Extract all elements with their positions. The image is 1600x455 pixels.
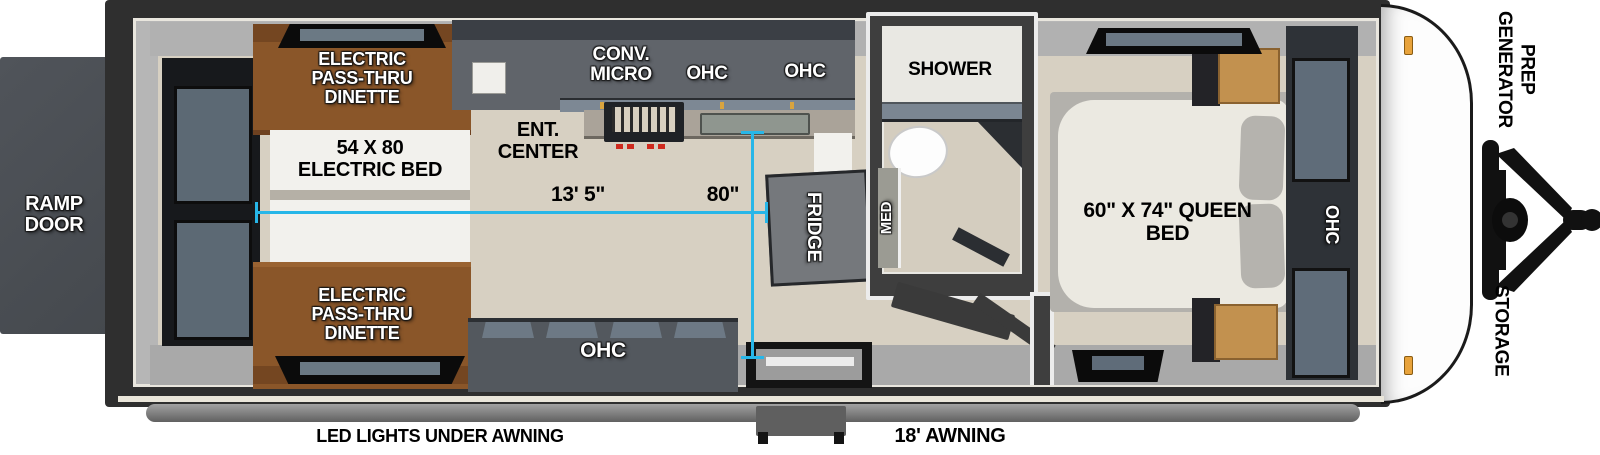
floor-register-glass [1092, 356, 1144, 370]
storage-label: STORAGE [1490, 276, 1514, 386]
conv-micro-text: CONV. MICRO [586, 45, 656, 85]
shower-label: SHOWER [880, 60, 1020, 81]
skylight-glass [300, 362, 440, 375]
dimension-tick [741, 131, 764, 134]
pillow [1239, 115, 1286, 200]
skylight-glass [1106, 33, 1242, 46]
floorplan-canvas: RAMP DOOR ELECTRIC PASS-THRU DINETTE ELE… [0, 0, 1600, 455]
fridge-label: FRIDGE [803, 182, 827, 272]
front-cap [1381, 4, 1473, 404]
ohc-kitchen-label-2: OHC [779, 62, 831, 82]
dimension-tick [741, 356, 764, 359]
awning-rail [146, 404, 1360, 422]
ent-center-text: ENT. CENTER [494, 120, 582, 163]
nightstand-wood-top [1218, 48, 1280, 104]
electric-bed-text: 54 X 80 ELECTRIC BED [290, 138, 450, 181]
exterior-step-leg [758, 432, 768, 444]
queen-bed-text: 60" X 74" QUEEN BED [1078, 200, 1258, 245]
skylight-glass [300, 29, 424, 41]
shower-glass [882, 102, 1022, 122]
dimension-line-vertical [751, 133, 754, 359]
ramp-door-label: RAMP DOOR [0, 194, 108, 236]
exterior-step-leg [834, 432, 844, 444]
led-light-strip [118, 396, 1384, 402]
electric-bed-label: 54 X 80 ELECTRIC BED [270, 138, 470, 181]
tv-cabinet-window [174, 86, 252, 204]
ohc-lower-glass [674, 322, 726, 338]
nightstand-wood-top [1214, 304, 1278, 360]
tv-cabinet-window [174, 220, 252, 340]
ent-center-minifridge [472, 62, 506, 94]
ohc-lower-glass [610, 322, 662, 338]
dinette-top-label: ELECTRIC PASS-THRU DINETTE [253, 50, 471, 107]
wardrobe-window [1292, 268, 1350, 378]
wardrobe-window [1292, 58, 1350, 182]
ohc-lower-glass [482, 322, 534, 338]
dinette-top-text: ELECTRIC PASS-THRU DINETTE [292, 50, 432, 107]
ohc-kitchen-label-1: OHC [681, 64, 733, 84]
burner-knob [658, 144, 665, 149]
bedroom-partition-core [1034, 296, 1050, 385]
clearance-light [1404, 356, 1413, 375]
ohc-bedroom-label: OHC [1322, 190, 1344, 260]
burner-knob [627, 144, 634, 149]
ohc-lower-glass [546, 322, 598, 338]
electric-bed-seam [270, 190, 470, 200]
dinette-bottom-text: ELECTRIC PASS-THRU DINETTE [292, 286, 432, 343]
queen-bed-label: 60" X 74" QUEEN BED [1055, 200, 1280, 245]
awning-label: 18' AWNING [870, 426, 1030, 448]
ent-center-label: ENT. CENTER [486, 120, 590, 163]
fireplace-screen [612, 107, 676, 132]
dimension-width-label: 80" [694, 184, 752, 207]
entry-door-step [766, 357, 854, 366]
conv-micro-label: CONV. MICRO [570, 45, 672, 85]
clearance-light [1404, 36, 1413, 55]
dimension-tick [255, 202, 258, 223]
counter-end-panel [814, 133, 852, 175]
dimension-length-label: 13' 5" [518, 184, 638, 207]
ohc-lower-label: OHC [468, 340, 738, 362]
exterior-step [756, 406, 846, 436]
ramp-door-text: RAMP DOOR [18, 194, 90, 236]
cabinet-hinge [790, 102, 794, 109]
burner-knob [616, 144, 623, 149]
generator-prep-label: GENERATOR PREP [1492, 2, 1540, 136]
med-label: MED [879, 191, 897, 245]
cabinet-hinge [720, 102, 724, 109]
dimension-line-horizontal [257, 211, 767, 214]
dinette-bottom-label: ELECTRIC PASS-THRU DINETTE [253, 286, 471, 343]
dimension-tick [765, 202, 768, 223]
led-lights-label: LED LIGHTS UNDER AWNING [230, 427, 650, 446]
burner-knob [647, 144, 654, 149]
